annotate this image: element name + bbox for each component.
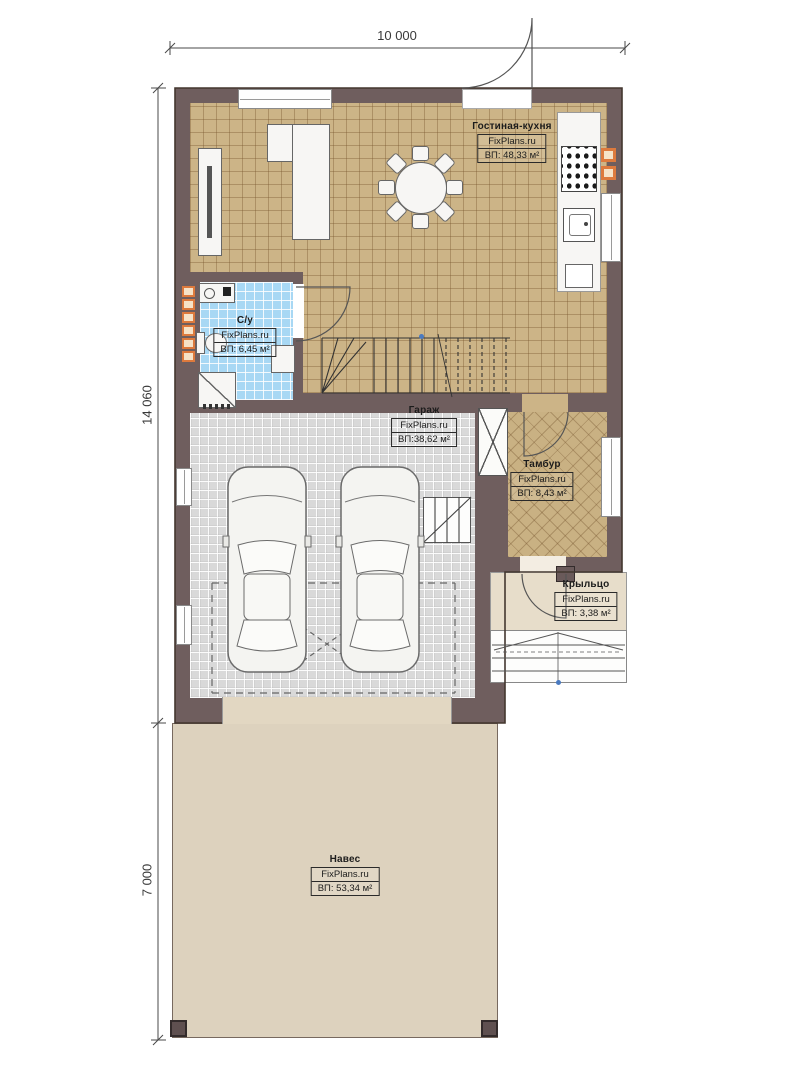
watermark: FixPlans.ru — [555, 593, 616, 607]
garage-steps-lines — [423, 497, 471, 543]
room-info-box: FixPlans.ru ВП: 3,38 м² — [554, 592, 617, 621]
room-info-box: FixPlans.ru ВП: 6,45 м² — [213, 328, 276, 357]
room-name: Крыльцо — [554, 579, 617, 590]
room-info-box: FixPlans.ru ВП: 53,34 м² — [311, 867, 380, 896]
room-label-vestibule: Тамбур FixPlans.ru ВП: 8,43 м² — [510, 459, 573, 501]
entry-door-arc — [462, 18, 532, 88]
vestibule-door-arc — [524, 412, 568, 456]
room-label-bathroom: С/у FixPlans.ru ВП: 6,45 м² — [213, 315, 276, 357]
room-name: Гараж — [391, 405, 457, 416]
bathroom-door-arc — [296, 287, 350, 341]
room-area: ВП: 53,34 м² — [312, 882, 379, 895]
porch-step-lines — [492, 632, 625, 681]
room-name: Навес — [311, 854, 380, 865]
car — [336, 467, 424, 672]
room-area: ВП: 3,38 м² — [555, 607, 616, 620]
room-area: ВП: 6,45 м² — [214, 343, 275, 356]
watermark: FixPlans.ru — [511, 473, 572, 487]
dimension-height-lower: 7 000 — [140, 864, 155, 897]
room-name: Гостиная-кухня — [472, 121, 551, 132]
room-label-porch: Крыльцо FixPlans.ru ВП: 3,38 м² — [554, 579, 617, 621]
dimension-width-top: 10 000 — [377, 28, 417, 43]
room-area: ВП: 8,43 м² — [511, 487, 572, 500]
linework-overlay — [0, 0, 792, 1080]
anchor-dot — [419, 334, 424, 339]
room-info-box: FixPlans.ru ВП: 48,33 м² — [478, 134, 547, 163]
room-area: ВП: 48,33 м² — [479, 149, 546, 162]
room-info-box: FixPlans.ru ВП: 8,43 м² — [510, 472, 573, 501]
watermark: FixPlans.ru — [392, 419, 456, 433]
room-label-garage: Гараж FixPlans.ru ВП:38,62 м² — [391, 405, 457, 447]
dimension-height-upper: 14 060 — [140, 385, 155, 425]
room-label-canopy: Навес FixPlans.ru ВП: 53,34 м² — [311, 854, 380, 896]
room-label-living-kitchen: Гостиная-кухня FixPlans.ru ВП: 48,33 м² — [472, 121, 551, 163]
watermark: FixPlans.ru — [214, 329, 275, 343]
anchor-dot — [556, 680, 561, 685]
room-name: С/у — [213, 315, 276, 326]
room-name: Тамбур — [510, 459, 573, 470]
room-info-box: FixPlans.ru ВП:38,62 м² — [391, 418, 457, 447]
room-area: ВП:38,62 м² — [392, 433, 456, 446]
watermark: FixPlans.ru — [479, 135, 546, 149]
staircase — [322, 334, 510, 397]
door-arcs — [296, 18, 568, 618]
watermark: FixPlans.ru — [312, 868, 379, 882]
car — [223, 467, 311, 672]
floor-plan-canvas: 10 000 14 060 7 000 Гостиная-кухня FixPl… — [0, 0, 792, 1080]
